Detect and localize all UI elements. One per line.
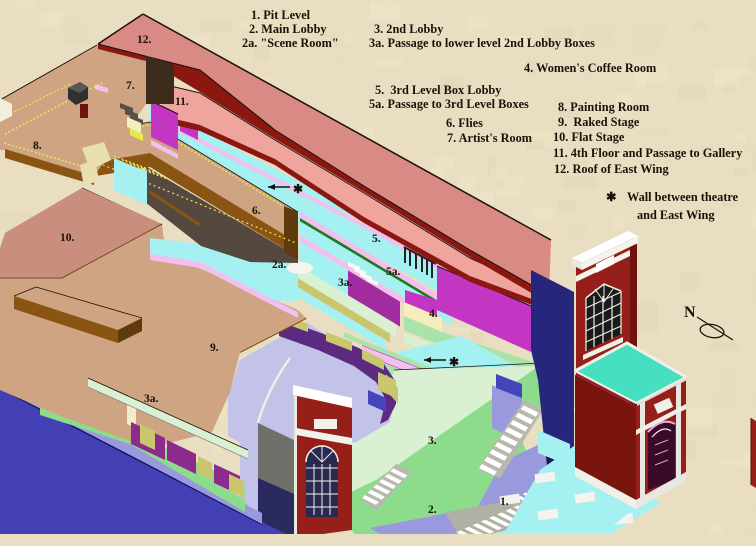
svg-text:6. Flies: 6. Flies xyxy=(446,116,483,130)
svg-text:3a.: 3a. xyxy=(144,393,159,405)
svg-text:✱: ✱ xyxy=(449,355,459,369)
svg-text:7. Artist's Room: 7. Artist's Room xyxy=(447,131,533,145)
svg-text:2. Main Lobby: 2. Main Lobby xyxy=(249,22,327,36)
svg-text:5a. Passage to 3rd Level Boxes: 5a. Passage to 3rd Level Boxes xyxy=(369,97,529,111)
svg-text:3. 2nd Lobby: 3. 2nd Lobby xyxy=(374,22,444,36)
svg-text:10. Flat Stage: 10. Flat Stage xyxy=(553,130,625,144)
svg-text:12. Roof of East Wing: 12. Roof of East Wing xyxy=(554,162,670,176)
svg-text:✱: ✱ xyxy=(293,182,303,196)
svg-text:✱: ✱ xyxy=(606,190,616,204)
svg-text:10.: 10. xyxy=(60,232,75,244)
svg-text:1. Pit Level: 1. Pit Level xyxy=(251,8,311,22)
svg-text:1.: 1. xyxy=(500,496,509,508)
svg-text:11.: 11. xyxy=(175,96,189,108)
svg-text:9.: 9. xyxy=(210,342,219,354)
svg-text:3.: 3. xyxy=(428,435,437,447)
svg-text:3a. Passage to lower level 2nd: 3a. Passage to lower level 2nd Lobby Box… xyxy=(369,36,595,50)
svg-text:3a.: 3a. xyxy=(338,277,353,289)
svg-text:12.: 12. xyxy=(137,34,152,46)
svg-text:11. 4th Floor and Passage to G: 11. 4th Floor and Passage to Gallery xyxy=(553,146,743,160)
svg-text:5. 3rd Level Box Lobby: 5. 3rd Level Box Lobby xyxy=(375,83,502,97)
svg-text:6.: 6. xyxy=(252,205,261,217)
svg-text:and East Wing: and East Wing xyxy=(637,208,715,222)
svg-text:2a. "Scene Room": 2a. "Scene Room" xyxy=(242,36,339,50)
svg-text:7.: 7. xyxy=(126,80,135,92)
svg-text:5.: 5. xyxy=(372,233,381,245)
svg-text:8. Painting Room: 8. Painting Room xyxy=(558,100,650,114)
svg-text:2.: 2. xyxy=(428,504,437,516)
svg-text:4. Women's Coffee Room: 4. Women's Coffee Room xyxy=(524,61,657,75)
svg-text:2a.: 2a. xyxy=(272,259,287,271)
svg-text:Wall between theatre: Wall between theatre xyxy=(627,190,739,204)
svg-text:4.: 4. xyxy=(429,308,438,320)
svg-text:8.: 8. xyxy=(33,140,42,152)
svg-text:5a.: 5a. xyxy=(386,266,401,278)
svg-text:9. Raked Stage: 9. Raked Stage xyxy=(558,115,640,129)
svg-text:N: N xyxy=(684,304,696,321)
